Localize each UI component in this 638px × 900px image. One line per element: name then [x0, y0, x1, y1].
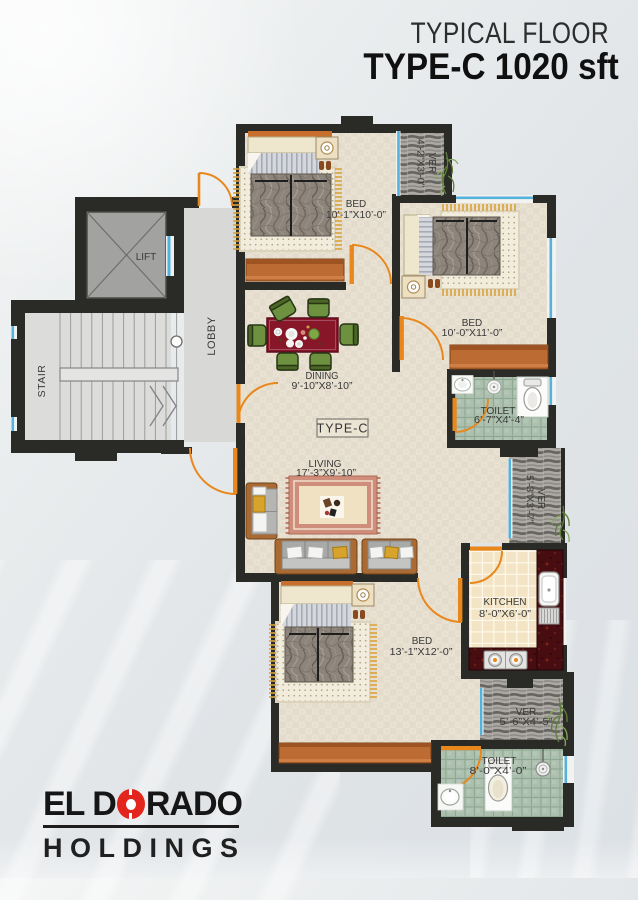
svg-text:9’-10”X8’-10”: 9’-10”X8’-10” [292, 380, 353, 392]
svg-text:10’-1”X10’-0”: 10’-1”X10’-0” [326, 209, 386, 221]
svg-text:10’-0”X11’-0”: 10’-0”X11’-0” [442, 327, 504, 339]
svg-text:KITCHEN: KITCHEN [484, 597, 527, 608]
svg-text:LIFT: LIFT [136, 252, 157, 263]
svg-text:5’-3”X3’-7”: 5’-3”X3’-7” [524, 475, 535, 523]
svg-text:TYPE-C: TYPE-C [317, 422, 369, 436]
svg-text:13’-1”X12’-0”: 13’-1”X12’-0” [390, 646, 454, 658]
svg-text:STAIR: STAIR [36, 365, 48, 398]
svg-text:LOBBY: LOBBY [206, 316, 218, 355]
svg-text:5’-6”X4’-5”: 5’-6”X4’-5” [500, 716, 554, 728]
svg-text:6’-7”X4’-4”: 6’-7”X4’-4” [474, 414, 525, 426]
svg-text:8’-0”X4’-0”: 8’-0”X4’-0” [470, 765, 528, 777]
svg-text:8’-0”X6’-0”: 8’-0”X6’-0” [479, 608, 532, 620]
svg-text:4’-2”X3’-0”: 4’-2”X3’-0” [415, 139, 426, 187]
svg-text:17’-3”X9’-10”: 17’-3”X9’-10” [296, 467, 356, 479]
svg-text:VER: VER [535, 489, 546, 510]
svg-text:VER: VER [426, 153, 437, 174]
